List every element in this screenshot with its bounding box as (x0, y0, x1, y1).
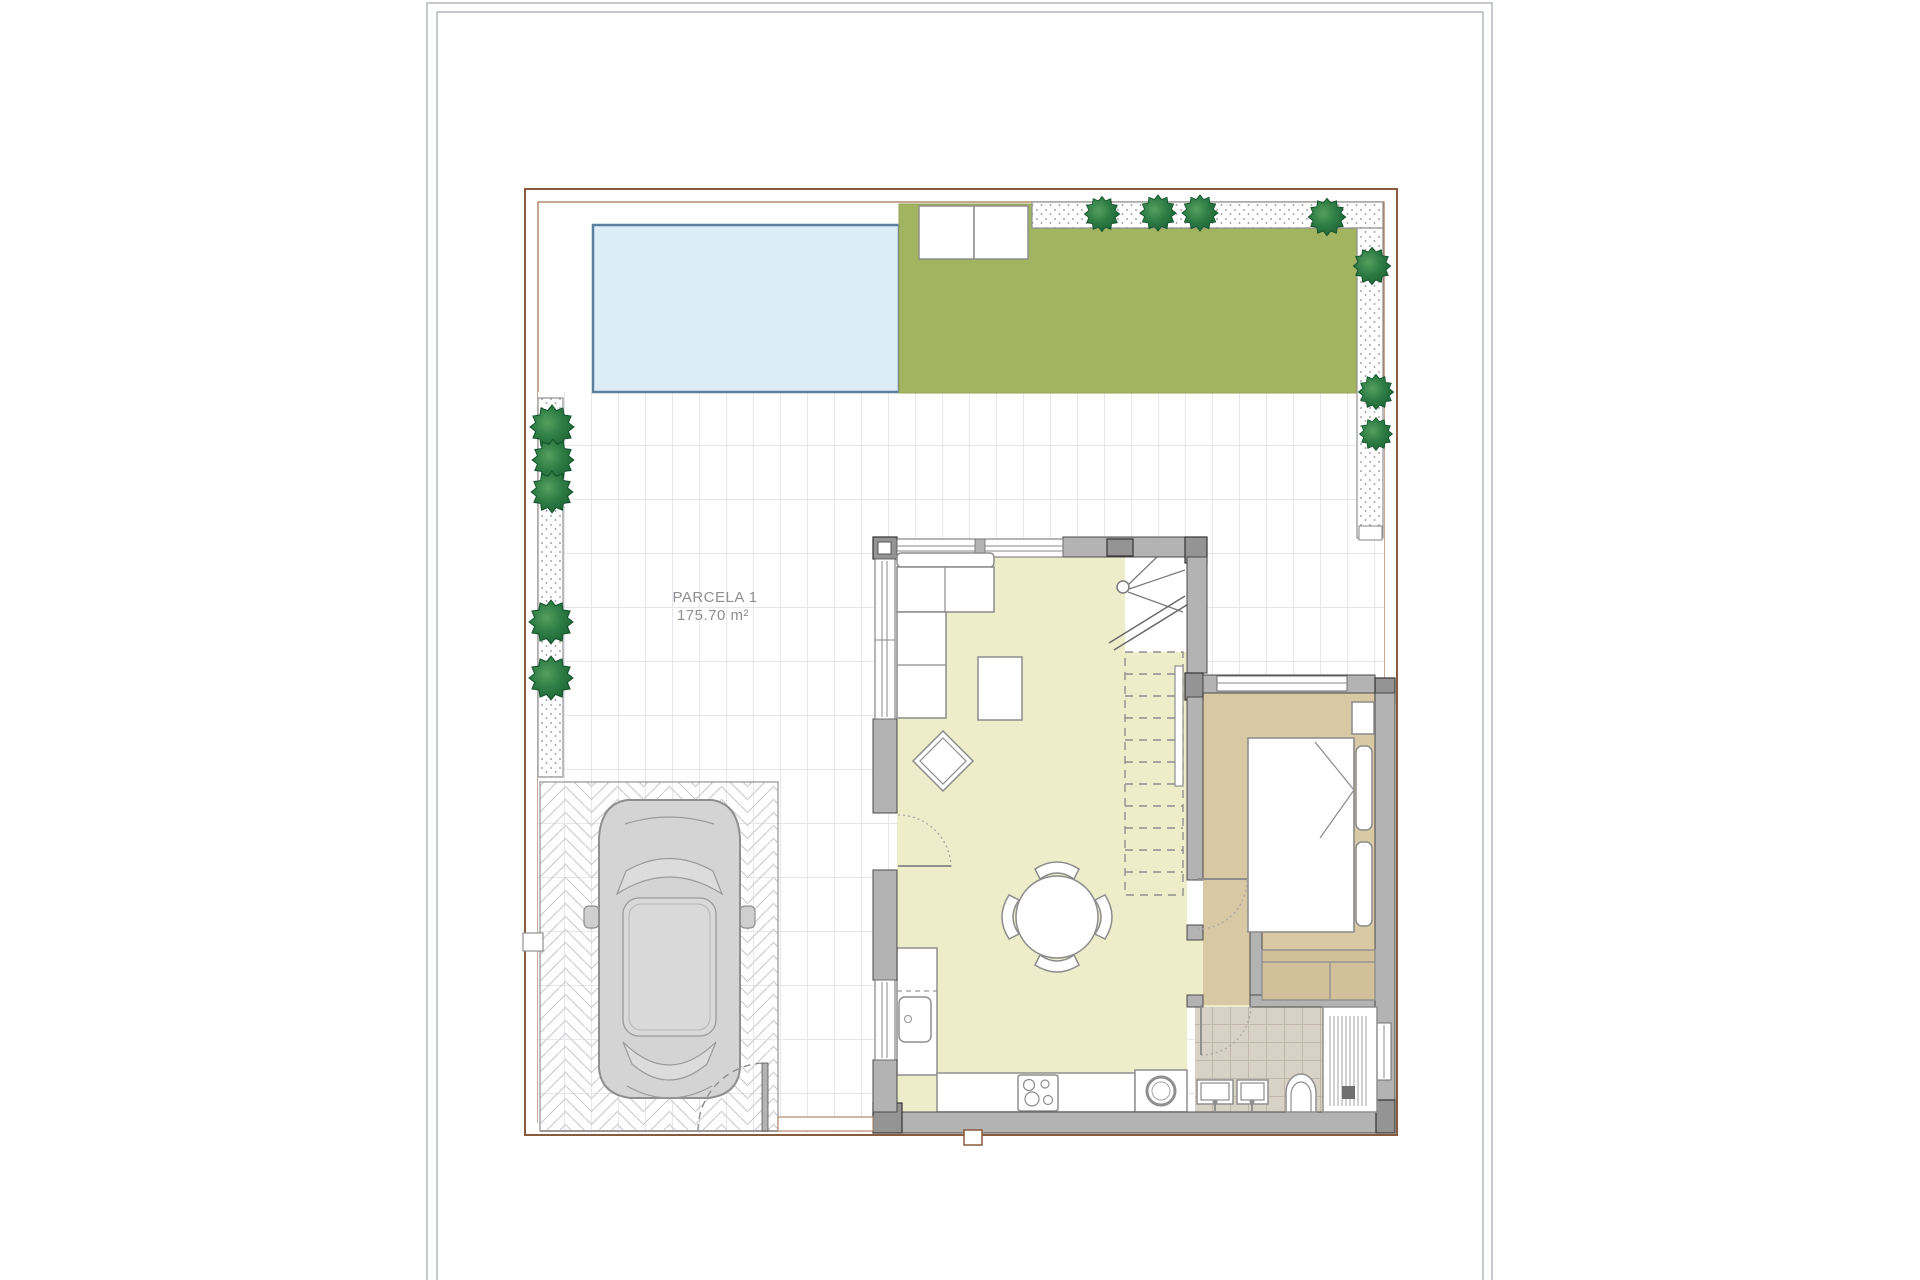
car (584, 800, 755, 1098)
garden-pad (974, 206, 1028, 259)
wall (873, 870, 897, 980)
sink-drain (905, 1016, 912, 1023)
kitchen-sink (899, 997, 931, 1042)
entry-threshold (778, 1117, 873, 1131)
dining-table (1016, 876, 1098, 958)
pillow (1356, 842, 1372, 926)
parcel-area: 175.70 m² (677, 607, 749, 624)
wall-column (1185, 673, 1203, 700)
car-mirror (740, 906, 755, 928)
drawing-sheet: PARCELA 1 175.70 m² (0, 0, 1920, 1280)
gate-leaf (762, 1063, 768, 1131)
gravel-end-cap (1359, 526, 1382, 540)
bed (1248, 738, 1354, 932)
floor-plan-canvas: PARCELA 1 175.70 m² (0, 0, 1920, 1280)
swimming-pool (593, 225, 899, 392)
parcel-label-group: PARCELA 1 175.70 m² (672, 589, 757, 624)
wall-column (1187, 925, 1203, 940)
pillow (1356, 746, 1372, 830)
window-living (875, 559, 895, 719)
wall (1107, 539, 1133, 556)
coffee-table (978, 657, 1022, 720)
stair-newel (1117, 581, 1129, 593)
wall (873, 719, 897, 813)
garden-pad (919, 206, 974, 259)
wall (1187, 697, 1203, 880)
car-roof (623, 898, 716, 1036)
sofa-back (897, 553, 994, 567)
parcel-label: PARCELA 1 (672, 589, 757, 606)
wall-column (1376, 1100, 1395, 1133)
utility-box (964, 1130, 982, 1145)
wall (873, 1112, 1395, 1133)
bedside-table (1352, 702, 1374, 734)
car-mirror (584, 906, 599, 928)
wardrobe (1262, 950, 1375, 1000)
window-kitchen (875, 980, 895, 1060)
wall (1187, 557, 1207, 673)
shower-drain (1342, 1086, 1355, 1099)
fence-box (523, 933, 543, 951)
wall (873, 1060, 897, 1112)
stair-handrail (1175, 666, 1183, 786)
hob (1018, 1075, 1058, 1111)
garden-lawn (899, 204, 1357, 393)
